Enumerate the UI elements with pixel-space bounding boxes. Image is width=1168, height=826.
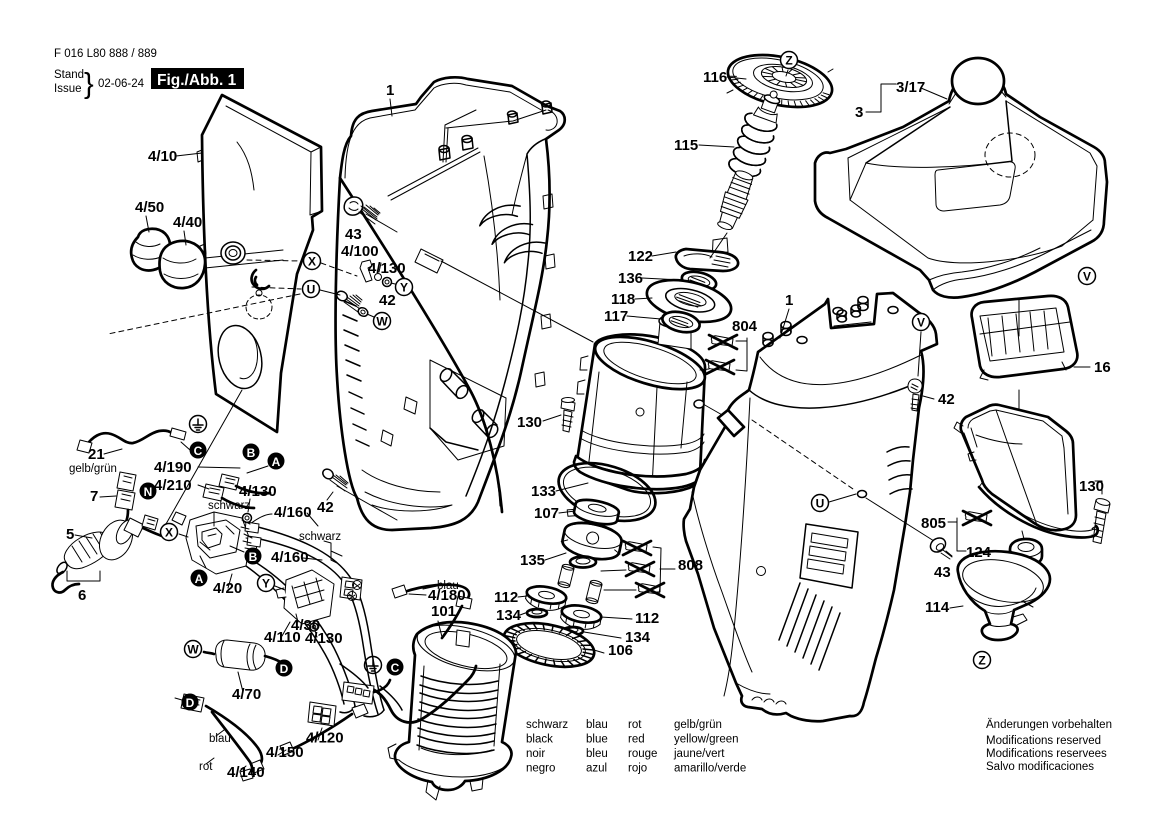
svg-text:amarillo/verde: amarillo/verde: [674, 763, 746, 775]
svg-text:Modifications reservees: Modifications reservees: [986, 748, 1107, 760]
svg-text:4/70: 4/70: [232, 686, 261, 703]
svg-text:130: 130: [517, 414, 542, 431]
svg-text:42: 42: [938, 391, 955, 408]
svg-text:blau: blau: [209, 733, 231, 745]
svg-text:4/110: 4/110: [264, 629, 301, 646]
svg-text:02-06-24: 02-06-24: [98, 78, 145, 90]
svg-text:124: 124: [966, 544, 992, 561]
svg-text:5: 5: [66, 526, 74, 543]
svg-text:Y: Y: [400, 281, 408, 295]
svg-text:F 016 L80 888 / 889: F 016 L80 888 / 889: [54, 48, 157, 60]
svg-text:106: 106: [608, 642, 633, 659]
svg-text:W: W: [376, 315, 388, 329]
svg-text:804: 804: [732, 318, 758, 335]
svg-text:C: C: [194, 444, 203, 458]
svg-text:yellow/green: yellow/green: [674, 734, 739, 746]
svg-text:negro: negro: [526, 763, 555, 775]
svg-text:7: 7: [90, 488, 98, 505]
svg-text:21: 21: [88, 446, 105, 463]
svg-text:4/130: 4/130: [305, 630, 343, 647]
svg-text:115: 115: [674, 137, 698, 154]
svg-text:blue: blue: [586, 734, 608, 746]
svg-text:W: W: [187, 643, 199, 657]
svg-text:C: C: [391, 661, 400, 675]
svg-text:bleu: bleu: [586, 748, 608, 760]
svg-text:A: A: [195, 572, 204, 586]
svg-text:114: 114: [925, 599, 950, 616]
svg-text:Z: Z: [978, 654, 985, 668]
svg-text:107: 107: [534, 505, 559, 522]
svg-text:Y: Y: [262, 577, 270, 591]
svg-text:noir: noir: [526, 748, 545, 760]
svg-text:X: X: [308, 255, 316, 269]
svg-text:blau: blau: [437, 580, 459, 592]
svg-text:rojo: rojo: [628, 763, 647, 775]
svg-text:B: B: [249, 550, 258, 564]
svg-text:130: 130: [1079, 478, 1104, 495]
svg-text:gelb/grün: gelb/grün: [69, 463, 117, 475]
svg-text:42: 42: [317, 499, 334, 516]
svg-text:4/160: 4/160: [274, 504, 312, 521]
svg-text:4/210: 4/210: [154, 477, 192, 494]
svg-text:122: 122: [628, 248, 653, 265]
svg-text:4/130: 4/130: [239, 483, 277, 500]
svg-text:4/50: 4/50: [135, 199, 164, 216]
svg-text:N: N: [144, 485, 153, 499]
svg-text:Modifications reserved: Modifications reserved: [986, 735, 1101, 747]
svg-text:4/100: 4/100: [341, 243, 379, 260]
svg-text:}: }: [84, 68, 94, 100]
svg-text:6: 6: [78, 587, 86, 604]
svg-text:jaune/vert: jaune/vert: [673, 748, 725, 760]
svg-text:136: 136: [618, 270, 643, 287]
svg-text:Stand: Stand: [54, 69, 84, 81]
svg-text:U: U: [816, 497, 825, 511]
svg-text:azul: azul: [586, 763, 607, 775]
svg-text:schwarz: schwarz: [208, 500, 250, 512]
svg-text:V: V: [1083, 270, 1091, 284]
svg-text:42: 42: [379, 292, 396, 309]
svg-text:rouge: rouge: [628, 748, 657, 760]
svg-text:4/130: 4/130: [368, 260, 406, 277]
svg-text:X: X: [165, 526, 173, 540]
svg-text:3: 3: [855, 104, 863, 121]
svg-text:B: B: [247, 446, 256, 460]
svg-text:blau: blau: [586, 719, 608, 731]
svg-text:135: 135: [520, 552, 545, 569]
svg-text:112: 112: [635, 610, 659, 627]
svg-text:D: D: [280, 662, 289, 676]
svg-text:805: 805: [921, 515, 946, 532]
svg-text:schwarz: schwarz: [299, 531, 341, 543]
svg-text:133: 133: [531, 483, 556, 500]
svg-text:134: 134: [496, 607, 522, 624]
svg-text:117: 117: [604, 308, 628, 325]
svg-text:U: U: [307, 283, 316, 297]
svg-text:4/10: 4/10: [148, 148, 177, 165]
svg-text:1: 1: [785, 292, 793, 309]
svg-text:4/160: 4/160: [271, 549, 309, 566]
svg-text:4/120: 4/120: [306, 730, 344, 747]
svg-text:43: 43: [345, 226, 362, 243]
svg-text:43: 43: [934, 564, 951, 581]
svg-text:3/17: 3/17: [896, 79, 925, 96]
svg-text:1: 1: [386, 82, 394, 99]
svg-text:A: A: [272, 455, 281, 469]
svg-text:red: red: [628, 734, 645, 746]
svg-text:Issue: Issue: [54, 83, 82, 95]
svg-text:808: 808: [678, 557, 703, 574]
svg-text:V: V: [917, 316, 925, 330]
svg-text:4/140: 4/140: [227, 764, 265, 781]
svg-text:gelb/grün: gelb/grün: [674, 719, 722, 731]
svg-text:Salvo modificaciones: Salvo modificaciones: [986, 761, 1094, 773]
svg-text:16: 16: [1094, 359, 1111, 376]
svg-text:4/40: 4/40: [173, 214, 202, 231]
svg-text:Änderungen vorbehalten: Änderungen vorbehalten: [986, 719, 1112, 731]
svg-text:rot: rot: [628, 719, 642, 731]
svg-text:rot: rot: [199, 761, 213, 773]
svg-text:black: black: [526, 734, 553, 746]
svg-text:4/20: 4/20: [213, 580, 242, 597]
svg-text:D: D: [186, 696, 195, 710]
svg-text:118: 118: [611, 291, 635, 308]
svg-text:101: 101: [431, 603, 456, 620]
svg-text:4/150: 4/150: [266, 744, 304, 761]
svg-text:4/190: 4/190: [154, 459, 192, 476]
svg-text:schwarz: schwarz: [526, 719, 568, 731]
svg-text:Fig./Abb. 1: Fig./Abb. 1: [157, 72, 237, 89]
svg-text:116: 116: [703, 69, 727, 86]
svg-text:112: 112: [494, 589, 518, 606]
svg-text:Z: Z: [785, 54, 792, 68]
